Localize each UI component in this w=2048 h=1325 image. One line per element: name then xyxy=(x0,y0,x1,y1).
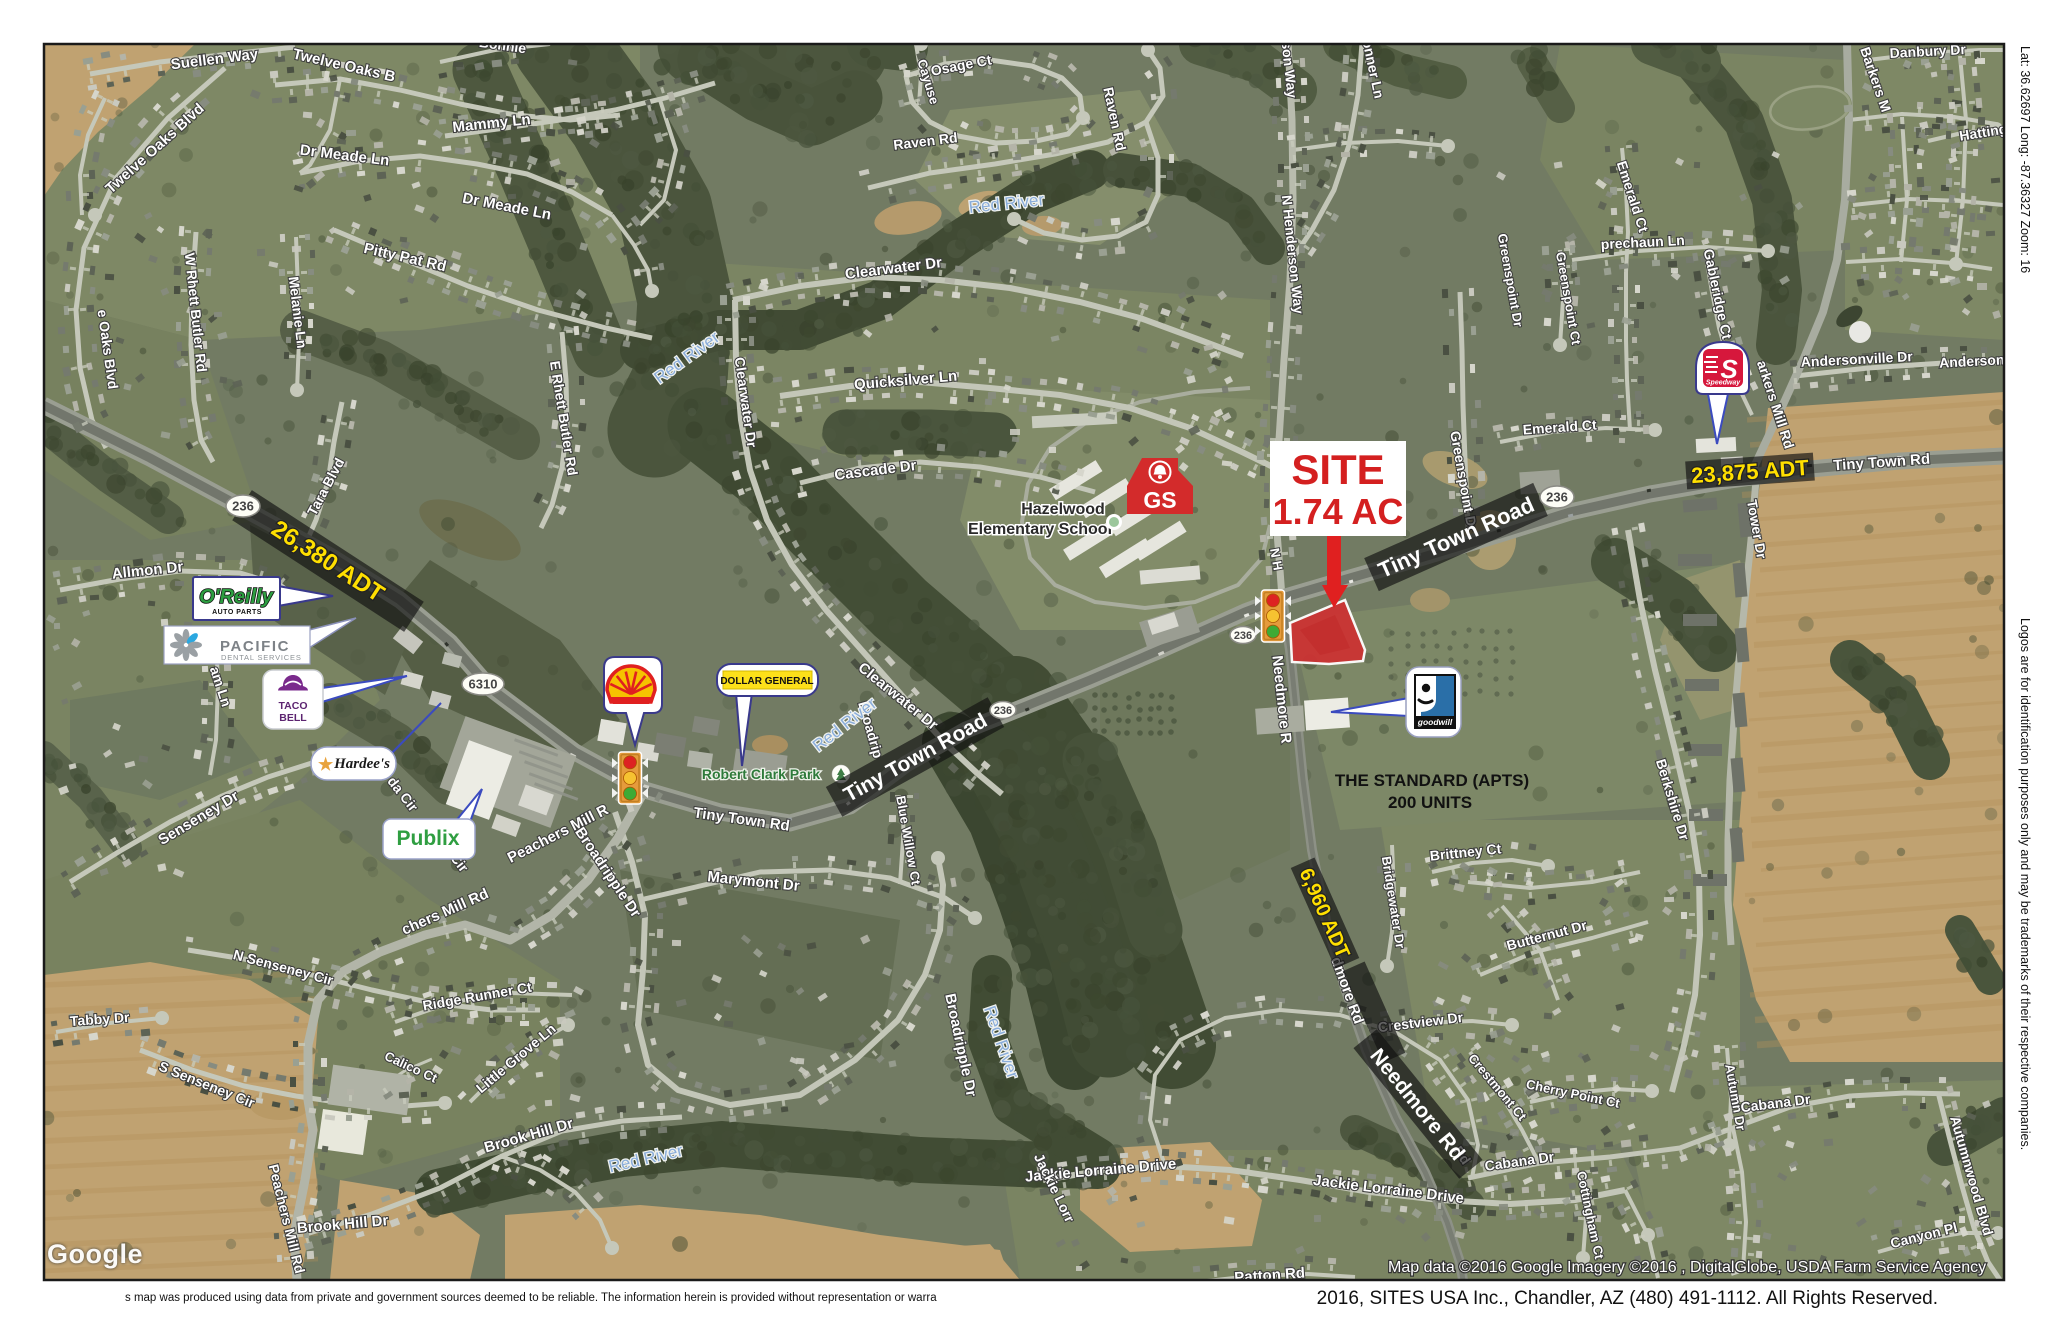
svg-text:s map was produced using data: s map was produced using data from priva… xyxy=(125,1292,937,1304)
svg-text:BELL: BELL xyxy=(279,712,307,724)
svg-text:DENTAL SERVICES: DENTAL SERVICES xyxy=(221,653,302,662)
svg-text:Anderson: Anderson xyxy=(1939,351,2005,370)
svg-text:236: 236 xyxy=(1234,630,1252,642)
svg-text:236: 236 xyxy=(1546,490,1568,505)
svg-text:O'Reilly: O'Reilly xyxy=(199,586,274,608)
svg-text:THE STANDARD (APTS): THE STANDARD (APTS) xyxy=(1335,771,1529,790)
svg-text:6310: 6310 xyxy=(469,677,498,692)
svg-text:2016, SITES USA Inc., Chandler: 2016, SITES USA Inc., Chandler, AZ (480)… xyxy=(1317,1288,1938,1309)
svg-text:Google: Google xyxy=(47,1239,143,1269)
svg-text:AUTO PARTS: AUTO PARTS xyxy=(212,609,262,616)
svg-text:TACO: TACO xyxy=(279,700,308,712)
svg-text:236: 236 xyxy=(994,705,1012,717)
svg-text:Hardee's: Hardee's xyxy=(333,756,390,772)
svg-text:Robert Clark Park: Robert Clark Park xyxy=(702,766,820,782)
svg-text:SITE: SITE xyxy=(1291,446,1384,493)
svg-text:Map data ©2016 Google Imagery: Map data ©2016 Google Imagery ©2016 , Di… xyxy=(1388,1259,1986,1276)
svg-text:goodwill: goodwill xyxy=(1417,717,1453,727)
svg-text:★: ★ xyxy=(318,755,334,774)
svg-text:Publix: Publix xyxy=(396,827,459,850)
svg-text:200 UNITS: 200 UNITS xyxy=(1388,793,1472,812)
svg-text:Speedway: Speedway xyxy=(1706,380,1741,387)
svg-text:Hazelwood: Hazelwood xyxy=(1021,501,1105,518)
svg-text:GS: GS xyxy=(1143,487,1176,513)
svg-text:1.74 AC: 1.74 AC xyxy=(1273,491,1404,532)
svg-text:Lat: 36.62697 Long: -87.36327: Lat: 36.62697 Long: -87.36327 Zoom: 16 xyxy=(2018,46,2032,273)
svg-text:DOLLAR GENERAL: DOLLAR GENERAL xyxy=(720,676,813,687)
svg-text:Logos are for identification p: Logos are for identification purposes on… xyxy=(2018,618,2032,1150)
svg-text:236: 236 xyxy=(232,499,254,514)
svg-text:Elementary School: Elementary School xyxy=(968,521,1112,538)
